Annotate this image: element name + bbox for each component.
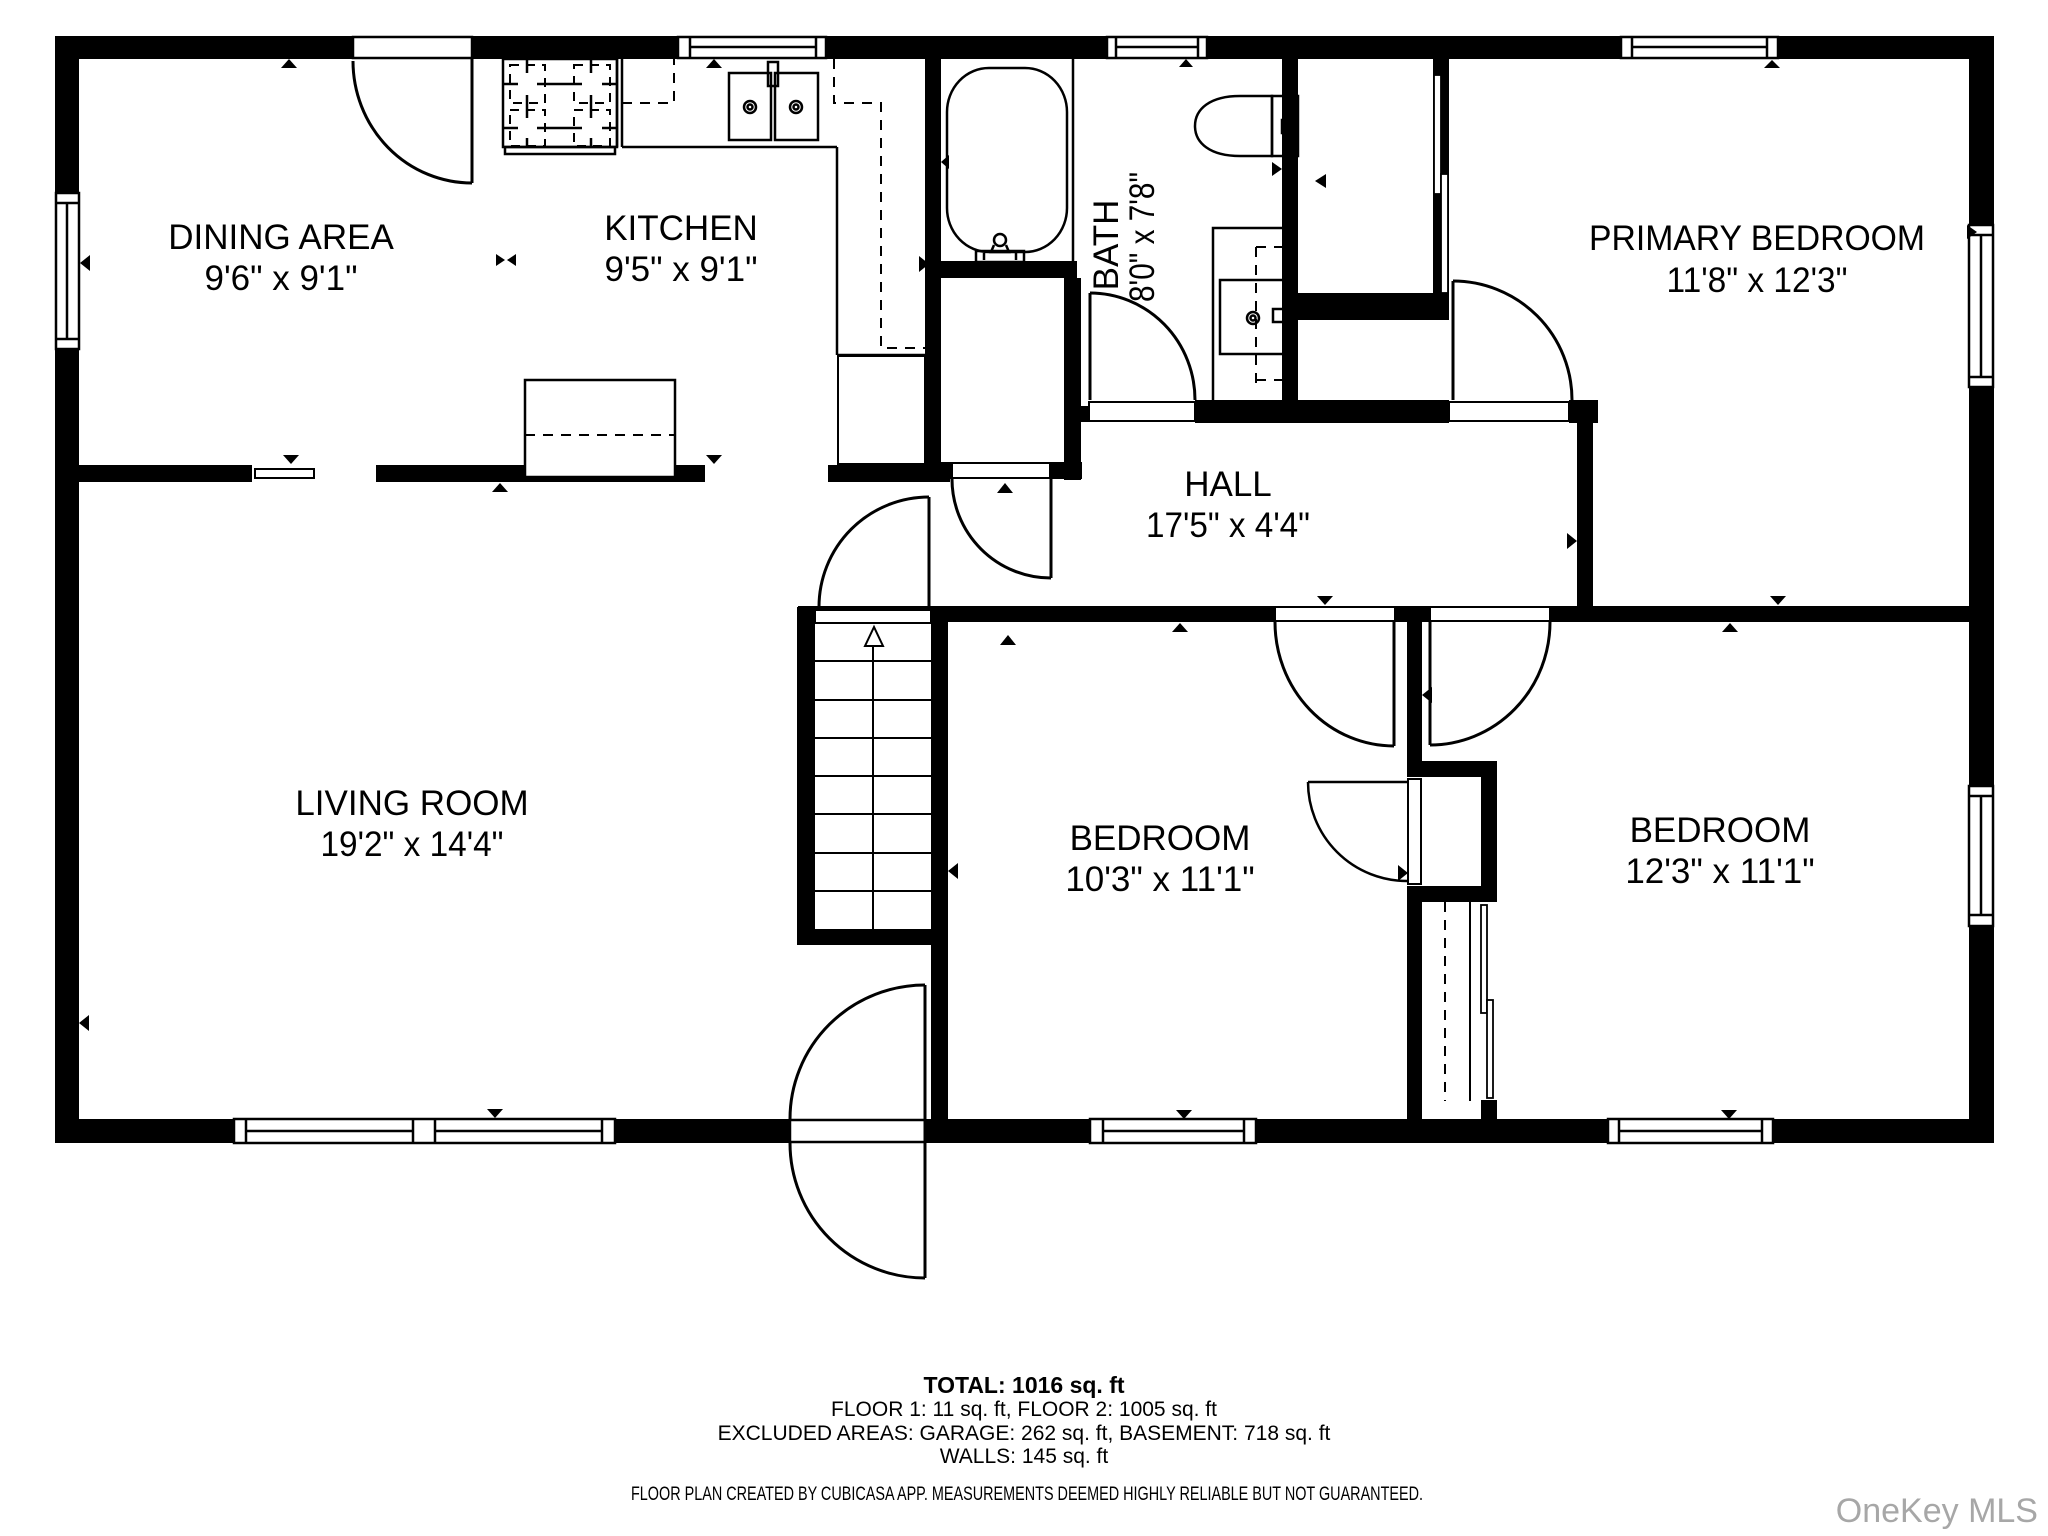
svg-text:LIVING ROOM: LIVING ROOM — [295, 784, 528, 823]
svg-text:BATH: BATH — [1087, 200, 1126, 291]
svg-text:12'3" x 11'1": 12'3" x 11'1" — [1625, 852, 1814, 891]
svg-text:BEDROOM: BEDROOM — [1630, 811, 1811, 850]
svg-text:KITCHEN: KITCHEN — [604, 209, 758, 248]
svg-text:FLOOR 1: 11 sq. ft, FLOOR 2: 1: FLOOR 1: 11 sq. ft, FLOOR 2: 1005 sq. ft — [831, 1398, 1217, 1421]
svg-text:17'5" x 4'4": 17'5" x 4'4" — [1146, 506, 1310, 545]
svg-text:9'5" x 9'1": 9'5" x 9'1" — [604, 250, 757, 289]
svg-text:HALL: HALL — [1184, 465, 1272, 504]
svg-text:19'2" x 14'4": 19'2" x 14'4" — [321, 825, 504, 864]
svg-text:BEDROOM: BEDROOM — [1070, 819, 1251, 858]
svg-text:DINING AREA: DINING AREA — [168, 218, 394, 257]
svg-text:TOTAL: 1016 sq. ft: TOTAL: 1016 sq. ft — [923, 1372, 1124, 1398]
svg-text:8'0" x 7'8": 8'0" x 7'8" — [1123, 172, 1162, 302]
svg-text:10'3" x 11'1": 10'3" x 11'1" — [1065, 860, 1254, 899]
svg-text:11'8" x 12'3": 11'8" x 12'3" — [1667, 261, 1848, 300]
svg-text:EXCLUDED AREAS: GARAGE: 262 sq: EXCLUDED AREAS: GARAGE: 262 sq. ft, BASE… — [718, 1422, 1331, 1445]
svg-text:WALLS: 145 sq. ft: WALLS: 145 sq. ft — [940, 1445, 1109, 1468]
svg-text:PRIMARY BEDROOM: PRIMARY BEDROOM — [1589, 219, 1925, 258]
svg-text:OneKey MLS: OneKey MLS — [1836, 1492, 2038, 1530]
svg-text:FLOOR PLAN CREATED BY CUBICASA: FLOOR PLAN CREATED BY CUBICASA APP. MEAS… — [631, 1484, 1423, 1505]
svg-text:9'6" x 9'1": 9'6" x 9'1" — [204, 259, 357, 298]
